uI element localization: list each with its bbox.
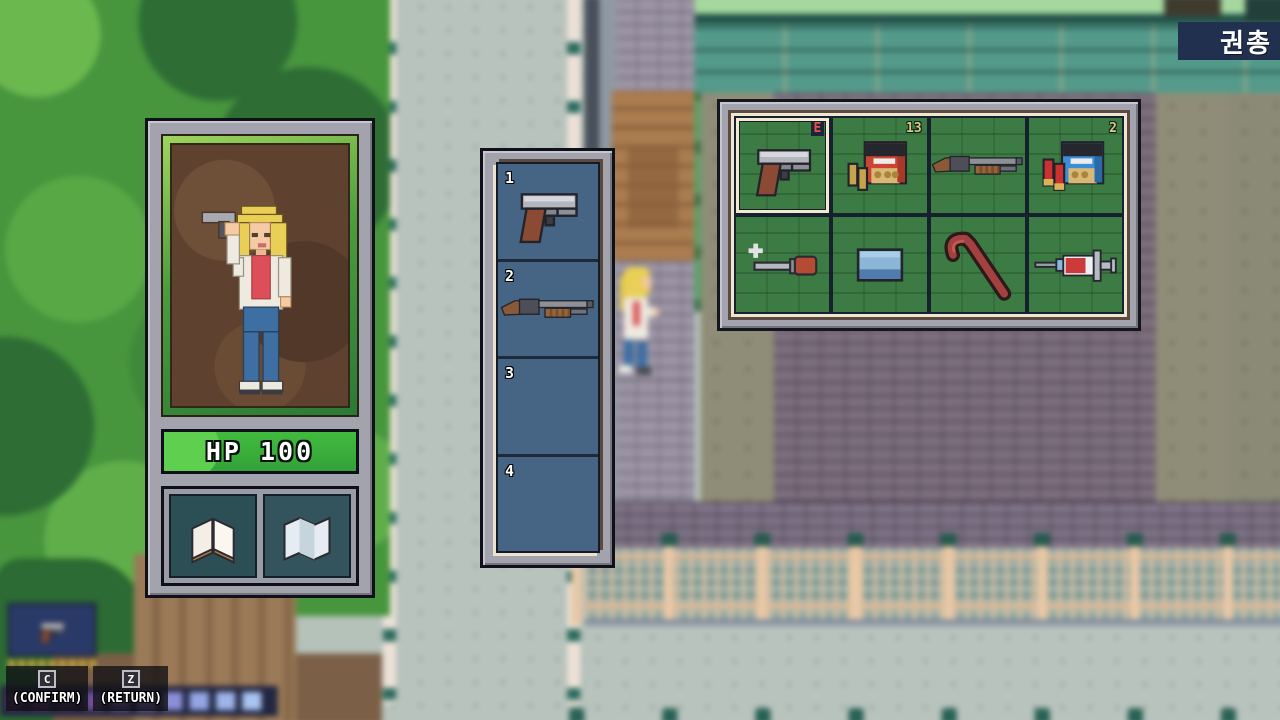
fence-post [1037, 540, 1047, 625]
hotbar-slot-3-empty[interactable]: 3 [498, 359, 598, 454]
pistol-icon [510, 173, 586, 249]
post-cap [569, 708, 584, 720]
character-portrait-frame [161, 134, 359, 417]
fence-rail-bottom [584, 603, 1280, 609]
book-icon [183, 506, 243, 566]
inventory-slot-shell-box[interactable]: 2 [1029, 118, 1122, 213]
fence-post [757, 540, 767, 625]
corner-detail [1245, 0, 1280, 22]
post-cap [942, 708, 957, 720]
hotbar-slot-number: 1 [505, 169, 514, 187]
fence-post [850, 540, 860, 625]
fence-post [1223, 540, 1233, 625]
inventory-slot-crowbar[interactable] [931, 217, 1025, 312]
inventory-slot-shotgun[interactable] [931, 118, 1025, 213]
fence-post [664, 540, 674, 625]
key-item-slot-book[interactable] [169, 494, 257, 578]
key-item-slot-map[interactable] [263, 494, 351, 578]
npc-shirt [633, 301, 640, 325]
inventory-frame: E 13 2 [728, 110, 1130, 320]
post-cap [848, 708, 863, 720]
fence-post [1130, 540, 1140, 625]
syringe-icon [1033, 240, 1117, 290]
shotgun-icon [931, 151, 1025, 181]
weapon-name-text: 권총 [1220, 23, 1272, 60]
key-c-icon: C [38, 670, 56, 688]
hotbar-slot-1-pistol[interactable]: 1 [498, 164, 598, 259]
inventory-slot-pistol[interactable]: E [736, 118, 829, 213]
shotgun-shell-box-icon [1036, 127, 1114, 205]
confirm-prompt[interactable]: C (CONFIRM) [6, 666, 88, 711]
soap-icon [845, 230, 915, 300]
screwdriver-icon [745, 227, 821, 303]
concrete-column-right [1156, 93, 1229, 526]
inventory-grid: E 13 2 [734, 116, 1124, 314]
npc-leg [637, 342, 647, 368]
hotbar-slot-number: 3 [505, 364, 514, 382]
inventory-slot-screwdriver[interactable] [736, 217, 829, 312]
inventory-slot-syringe[interactable] [1029, 217, 1122, 312]
curb-line [584, 619, 1280, 626]
character-portrait [170, 143, 350, 408]
inventory-slot-soap[interactable] [833, 217, 926, 312]
brick-pavement [584, 502, 1280, 551]
npc-shoe [637, 367, 651, 375]
fence-post [944, 540, 954, 625]
hotbar-slot-number: 4 [505, 462, 514, 480]
key-prompts: C (CONFIRM) Z (RETURN) [6, 666, 168, 711]
equipped-pistol-icon [30, 614, 75, 646]
wooden-step [628, 147, 679, 228]
key-z-icon: Z [122, 670, 140, 688]
confirm-label: (CONFIRM) [12, 691, 82, 706]
npc-shoe [619, 365, 632, 373]
hp-bar: HP 100 [161, 429, 359, 474]
hotbar-panel: 1 2 3 4 [480, 148, 615, 568]
post-cap [1035, 708, 1050, 720]
map-icon [277, 506, 337, 566]
post-cap [755, 708, 770, 720]
item-count: 13 [906, 122, 922, 136]
roof-detail [1164, 0, 1221, 16]
post-cap [1221, 708, 1236, 720]
key-item-box [161, 486, 359, 586]
equipped-badge: E [811, 122, 825, 136]
fence-rail-top [584, 554, 1280, 559]
npc-face [642, 277, 651, 288]
post-cap [662, 708, 677, 720]
inventory-slot-pistol-ammo[interactable]: 13 [833, 118, 926, 213]
post-cap [1128, 708, 1143, 720]
game-screen: HP 100 1 2 3 4 [0, 0, 1280, 720]
road-bottom [584, 626, 1280, 720]
pistol-ammo-box-icon [841, 127, 919, 205]
npc-leg [624, 340, 634, 368]
shotgun-icon [500, 294, 596, 324]
concrete-column-edge [1229, 93, 1280, 526]
return-prompt[interactable]: Z (RETURN) [93, 666, 168, 711]
hp-text: HP 100 [206, 437, 314, 466]
inventory-panel: E 13 2 [717, 99, 1141, 331]
hotbar-slot-number: 2 [505, 267, 514, 285]
npc-walking-character [612, 265, 667, 388]
crowbar-icon [938, 225, 1018, 305]
character-sprite [194, 200, 326, 406]
hotbar-slots: 1 2 3 4 [496, 162, 600, 553]
hotbar-slot-4-empty[interactable]: 4 [498, 457, 598, 552]
npc-hand [653, 308, 659, 315]
character-panel: HP 100 [145, 118, 375, 598]
equipped-weapon-hud [8, 603, 97, 657]
item-count: 2 [1109, 122, 1117, 136]
selected-weapon-label: 권총 [1178, 22, 1280, 60]
return-label: (RETURN) [99, 691, 162, 706]
hotbar-slot-2-shotgun[interactable]: 2 [498, 262, 598, 357]
pistol-icon [747, 130, 819, 202]
